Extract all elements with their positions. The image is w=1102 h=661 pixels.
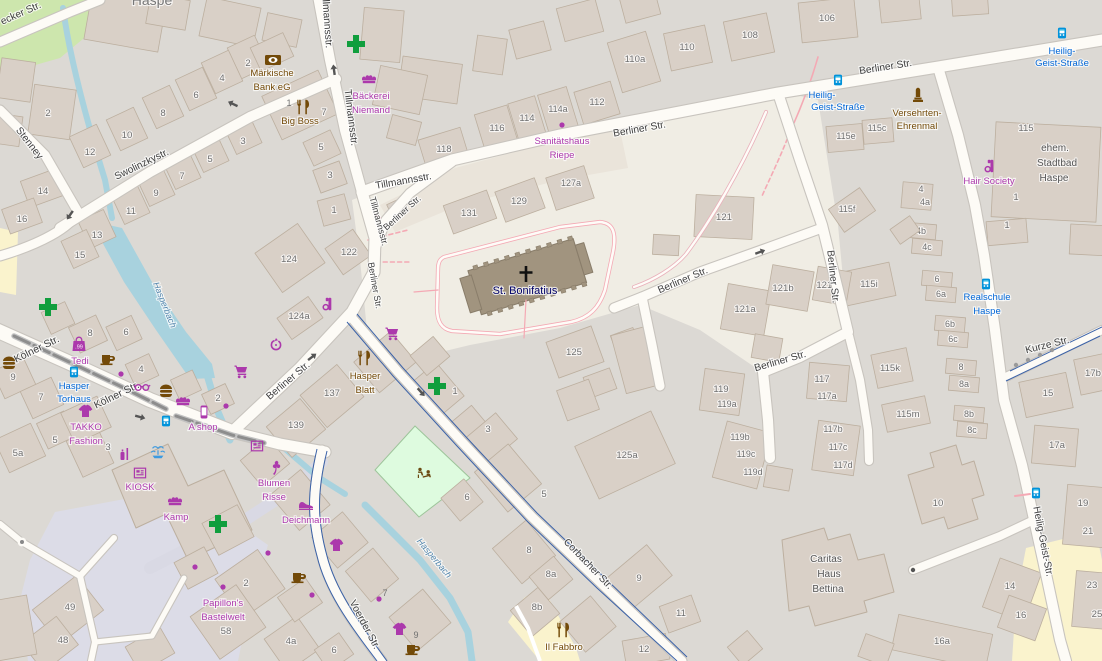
svg-text:Realschule: Realschule	[964, 292, 1011, 303]
svg-text:117b: 117b	[823, 424, 842, 434]
svg-text:4c: 4c	[922, 242, 932, 252]
svg-text:19: 19	[1078, 498, 1089, 509]
svg-text:Ehrenmal: Ehrenmal	[897, 121, 938, 132]
svg-text:A shop: A shop	[188, 422, 217, 433]
svg-text:119: 119	[713, 384, 728, 395]
svg-text:15: 15	[75, 250, 86, 261]
svg-text:9: 9	[413, 630, 418, 640]
svg-text:4: 4	[219, 73, 225, 84]
svg-text:110: 110	[679, 42, 694, 53]
svg-text:14: 14	[38, 186, 49, 197]
svg-text:2: 2	[215, 393, 220, 404]
svg-text:Big Boss: Big Boss	[281, 116, 319, 127]
svg-text:5: 5	[541, 489, 546, 500]
svg-text:5: 5	[52, 435, 57, 446]
svg-text:Haus: Haus	[817, 569, 840, 580]
svg-text:Haspe: Haspe	[132, 0, 173, 8]
svg-text:127a: 127a	[561, 178, 581, 188]
svg-text:Niemand: Niemand	[352, 105, 390, 116]
svg-text:110a: 110a	[625, 54, 646, 65]
svg-text:114a: 114a	[548, 104, 567, 114]
svg-text:137: 137	[324, 388, 340, 399]
svg-text:9: 9	[153, 188, 158, 199]
svg-text:Fashion: Fashion	[69, 436, 103, 447]
svg-text:2: 2	[243, 578, 248, 589]
svg-text:115e: 115e	[836, 131, 855, 141]
svg-text:48: 48	[58, 635, 69, 646]
svg-text:3: 3	[105, 442, 110, 453]
svg-text:8b: 8b	[964, 409, 974, 419]
svg-text:7: 7	[38, 392, 43, 403]
svg-text:9: 9	[10, 372, 15, 383]
svg-text:119a: 119a	[717, 399, 736, 409]
svg-text:10: 10	[122, 130, 133, 141]
svg-text:Caritas: Caritas	[810, 554, 842, 565]
svg-text:119c: 119c	[737, 449, 756, 459]
svg-text:6: 6	[464, 492, 469, 503]
svg-text:25: 25	[1092, 609, 1102, 620]
svg-text:124: 124	[281, 254, 298, 265]
svg-text:49: 49	[65, 602, 76, 613]
svg-text:4: 4	[138, 364, 144, 375]
svg-text:8: 8	[526, 545, 531, 556]
svg-text:KIOSK: KIOSK	[125, 482, 155, 493]
svg-text:2: 2	[45, 108, 50, 119]
svg-text:Tedi: Tedi	[71, 356, 88, 367]
svg-text:122: 122	[341, 247, 357, 258]
svg-text:7: 7	[382, 588, 387, 598]
svg-text:16: 16	[1016, 610, 1027, 621]
svg-text:6: 6	[331, 645, 336, 656]
svg-text:1: 1	[1013, 192, 1018, 203]
svg-text:8a: 8a	[546, 569, 557, 580]
svg-text:115: 115	[1018, 123, 1033, 134]
svg-text:Blatt: Blatt	[355, 385, 374, 396]
svg-text:114: 114	[519, 113, 535, 124]
svg-text:Geist-Straße: Geist-Straße	[1035, 58, 1089, 69]
svg-text:8c: 8c	[967, 425, 977, 435]
svg-text:131: 131	[461, 208, 477, 219]
svg-text:Bettina: Bettina	[812, 584, 844, 595]
svg-text:115i: 115i	[860, 279, 877, 290]
svg-text:Kamp: Kamp	[164, 512, 189, 523]
svg-text:12: 12	[85, 147, 96, 158]
svg-text:119d: 119d	[743, 467, 762, 477]
svg-text:Sanitätshaus: Sanitätshaus	[535, 136, 590, 147]
svg-text:Hasper: Hasper	[59, 381, 90, 392]
svg-text:129: 129	[511, 196, 527, 207]
svg-text:21: 21	[1083, 526, 1094, 537]
svg-text:Versehrten-: Versehrten-	[892, 108, 941, 119]
svg-text:Bank eG: Bank eG	[254, 82, 291, 93]
svg-text:115k: 115k	[880, 363, 900, 374]
svg-text:119b: 119b	[730, 432, 749, 442]
svg-text:115c: 115c	[868, 123, 887, 133]
svg-text:Torhaus: Torhaus	[57, 394, 91, 405]
svg-text:6: 6	[123, 327, 128, 338]
svg-text:14: 14	[1005, 581, 1016, 592]
svg-text:4a: 4a	[286, 636, 297, 647]
svg-text:6c: 6c	[948, 334, 958, 344]
svg-text:Haspe: Haspe	[973, 306, 1000, 317]
svg-text:St. Bonifatius: St. Bonifatius	[493, 285, 558, 297]
svg-text:13: 13	[92, 230, 103, 241]
svg-text:8a: 8a	[959, 379, 969, 389]
svg-text:TAKKO: TAKKO	[70, 422, 102, 433]
svg-text:8b: 8b	[532, 602, 543, 613]
svg-text:Hasper: Hasper	[350, 371, 381, 382]
svg-text:Geist-Straße: Geist-Straße	[811, 102, 865, 113]
svg-text:9: 9	[636, 573, 641, 584]
svg-text:3: 3	[327, 170, 332, 181]
svg-text:Il Fabbro: Il Fabbro	[545, 642, 583, 653]
svg-text:15: 15	[1043, 388, 1054, 399]
svg-text:1: 1	[331, 205, 336, 216]
svg-text:139: 139	[288, 420, 304, 431]
svg-text:117: 117	[814, 374, 829, 385]
svg-text:5: 5	[207, 154, 212, 165]
svg-text:Heilig-: Heilig-	[1049, 46, 1076, 57]
svg-text:117c: 117c	[829, 442, 848, 452]
svg-text:Haspe: Haspe	[1040, 173, 1069, 184]
svg-text:121a: 121a	[734, 304, 756, 315]
svg-text:4a: 4a	[920, 197, 930, 207]
svg-text:17a: 17a	[1049, 440, 1066, 451]
svg-text:Märkische: Märkische	[250, 68, 293, 79]
svg-text:3: 3	[485, 424, 490, 435]
svg-text:5: 5	[318, 142, 323, 153]
svg-text:118: 118	[436, 144, 451, 155]
svg-text:Risse: Risse	[262, 492, 286, 503]
svg-text:12: 12	[639, 644, 650, 655]
svg-text:121: 121	[716, 212, 732, 223]
svg-text:58: 58	[221, 626, 232, 637]
svg-text:Heilig-: Heilig-	[809, 90, 836, 101]
svg-text:125a: 125a	[616, 450, 638, 461]
svg-text:17b: 17b	[1085, 368, 1101, 379]
svg-text:11: 11	[126, 206, 136, 217]
svg-text:125: 125	[566, 347, 582, 358]
svg-text:11: 11	[676, 608, 686, 619]
svg-text:6: 6	[934, 274, 939, 284]
svg-text:Deichmann: Deichmann	[282, 515, 330, 526]
svg-text:6: 6	[193, 90, 198, 101]
svg-text:116: 116	[489, 123, 504, 134]
svg-text:112: 112	[589, 97, 604, 108]
svg-text:5a: 5a	[13, 448, 24, 459]
svg-text:3: 3	[240, 136, 245, 147]
svg-text:Papillon's: Papillon's	[203, 598, 244, 609]
svg-text:16a: 16a	[934, 636, 951, 647]
svg-text:23: 23	[1087, 580, 1098, 591]
svg-text:106: 106	[819, 13, 835, 24]
svg-text:115m: 115m	[896, 409, 919, 420]
svg-text:108: 108	[742, 30, 758, 41]
svg-text:Bäckerei: Bäckerei	[353, 91, 390, 102]
svg-text:7: 7	[179, 171, 184, 182]
svg-text:124a: 124a	[288, 311, 310, 322]
svg-text:Blumen: Blumen	[258, 478, 290, 489]
svg-text:8: 8	[87, 328, 92, 339]
svg-text:6b: 6b	[945, 319, 955, 329]
svg-text:4: 4	[918, 184, 923, 194]
svg-text:Riepe: Riepe	[550, 150, 575, 161]
svg-text:10: 10	[933, 498, 944, 509]
svg-text:Stadtbad: Stadtbad	[1037, 158, 1077, 169]
svg-text:ehem.: ehem.	[1041, 143, 1069, 154]
svg-text:Hair Society: Hair Society	[963, 176, 1014, 187]
svg-text:8: 8	[160, 108, 165, 119]
svg-text:7: 7	[321, 107, 326, 118]
svg-text:16: 16	[17, 214, 28, 225]
svg-text:8: 8	[958, 362, 963, 372]
svg-text:115f: 115f	[839, 204, 856, 214]
svg-text:6a: 6a	[936, 289, 946, 299]
svg-text:117d: 117d	[833, 460, 852, 470]
svg-text:1: 1	[452, 386, 457, 397]
svg-text:1: 1	[1004, 220, 1009, 231]
svg-text:1: 1	[286, 98, 291, 108]
svg-text:Bastelwelt: Bastelwelt	[201, 612, 245, 623]
svg-text:121b: 121b	[772, 283, 793, 294]
svg-text:117a: 117a	[817, 391, 836, 401]
